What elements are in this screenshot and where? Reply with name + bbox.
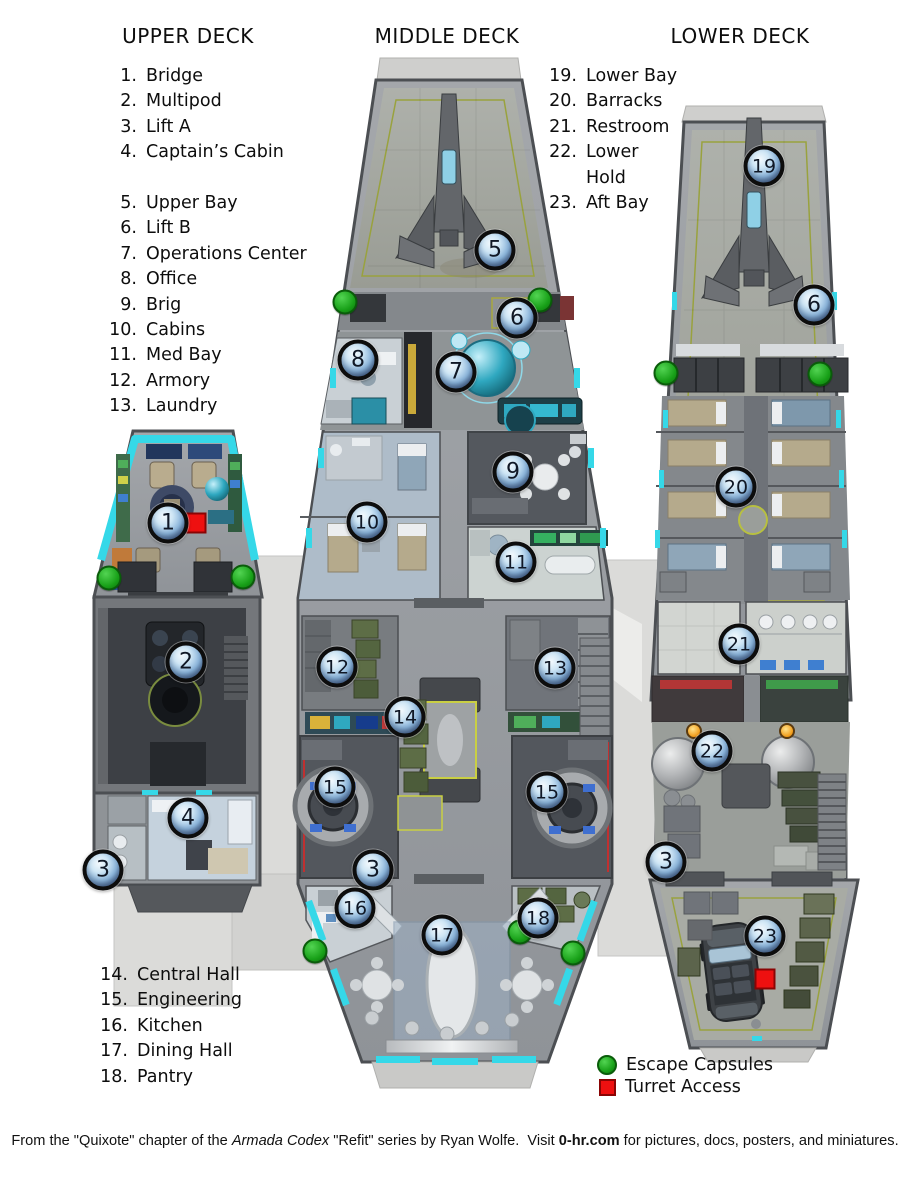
room-marker-23: 23 xyxy=(745,916,786,957)
turret-access-square xyxy=(755,969,776,990)
room-marker-7: 7 xyxy=(436,352,477,393)
room-marker-5: 5 xyxy=(475,230,516,271)
escape-capsule-dot xyxy=(561,941,586,966)
room-marker-19: 19 xyxy=(744,146,785,187)
room-marker-4: 4 xyxy=(168,798,209,839)
room-marker-15: 15 xyxy=(527,772,568,813)
deck-plan-poster: UPPER DECK MIDDLE DECK LOWER DECK 1.Brid… xyxy=(0,0,910,1177)
room-marker-22: 22 xyxy=(692,731,733,772)
room-marker-3: 3 xyxy=(83,850,124,891)
escape-capsule-dot xyxy=(333,290,358,315)
room-marker-3: 3 xyxy=(646,842,687,883)
turret-access-square xyxy=(186,513,207,534)
room-marker-16: 16 xyxy=(335,888,376,929)
room-marker-14: 14 xyxy=(385,697,426,738)
escape-capsule-dot xyxy=(808,362,833,387)
escape-capsule-dot xyxy=(303,939,328,964)
escape-capsule-dot xyxy=(654,361,679,386)
escape-capsule-dot xyxy=(231,565,256,590)
room-marker-3: 3 xyxy=(353,850,394,891)
room-marker-12: 12 xyxy=(317,647,358,688)
room-marker-9: 9 xyxy=(493,452,534,493)
room-marker-21: 21 xyxy=(719,624,760,665)
room-marker-13: 13 xyxy=(535,648,576,689)
room-marker-11: 11 xyxy=(496,542,537,583)
escape-capsule-dot xyxy=(97,566,122,591)
room-marker-8: 8 xyxy=(338,340,379,381)
map-marker-overlay: 1243568791011121314151531617181962021223… xyxy=(0,0,910,1177)
room-marker-1: 1 xyxy=(148,503,189,544)
room-marker-15: 15 xyxy=(315,767,356,808)
room-marker-17: 17 xyxy=(422,915,463,956)
room-marker-10: 10 xyxy=(347,502,388,543)
hold-lamp-dot xyxy=(779,723,795,739)
room-marker-6: 6 xyxy=(794,285,835,326)
room-marker-18: 18 xyxy=(518,898,559,939)
room-marker-6: 6 xyxy=(497,298,538,339)
room-marker-20: 20 xyxy=(716,467,757,508)
room-marker-2: 2 xyxy=(166,642,207,683)
